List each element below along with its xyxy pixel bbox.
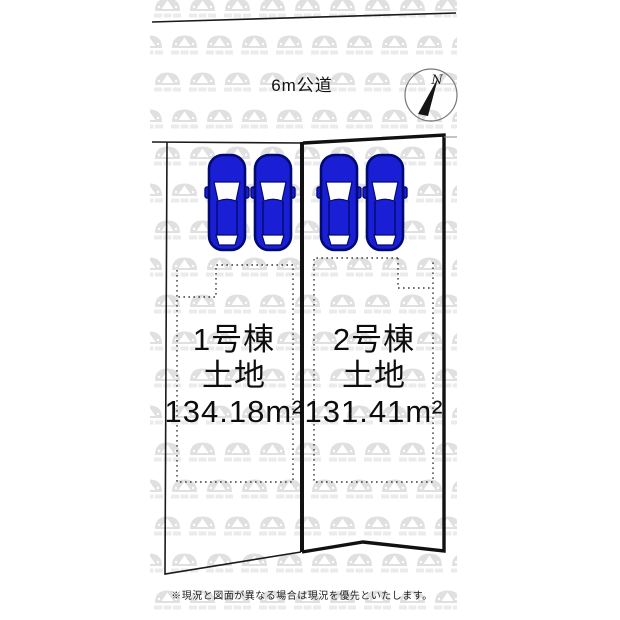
north-arrow-icon — [418, 78, 438, 116]
road-label: 6m公道 — [271, 71, 333, 96]
road-edge-line — [152, 13, 456, 22]
plot1-land-label: 土地 — [165, 358, 304, 394]
north-compass: N — [405, 69, 457, 121]
plot2-land-label: 土地 — [305, 358, 444, 394]
car-icon — [251, 155, 295, 250]
plot1-name: 1号棟 — [165, 322, 304, 358]
plot2-label: 2号棟 土地 131.41m² — [305, 322, 444, 430]
disclaimer-note: ※現況と図面が異なる場合は現況を優先といたします。 — [171, 587, 433, 602]
plot1-area: 134.18m² — [165, 394, 304, 430]
plot2-area: 131.41m² — [305, 394, 444, 430]
car-icon — [363, 155, 407, 250]
plot1-label: 1号棟 土地 134.18m² — [165, 322, 304, 430]
site-plan-screenshot: N 6m公道 1号棟 土地 134.18m² 2号棟 土地 131.41m² ※… — [0, 0, 620, 620]
car-icon — [205, 155, 249, 250]
car-icon — [317, 155, 361, 250]
plot2-name: 2号棟 — [305, 322, 444, 358]
